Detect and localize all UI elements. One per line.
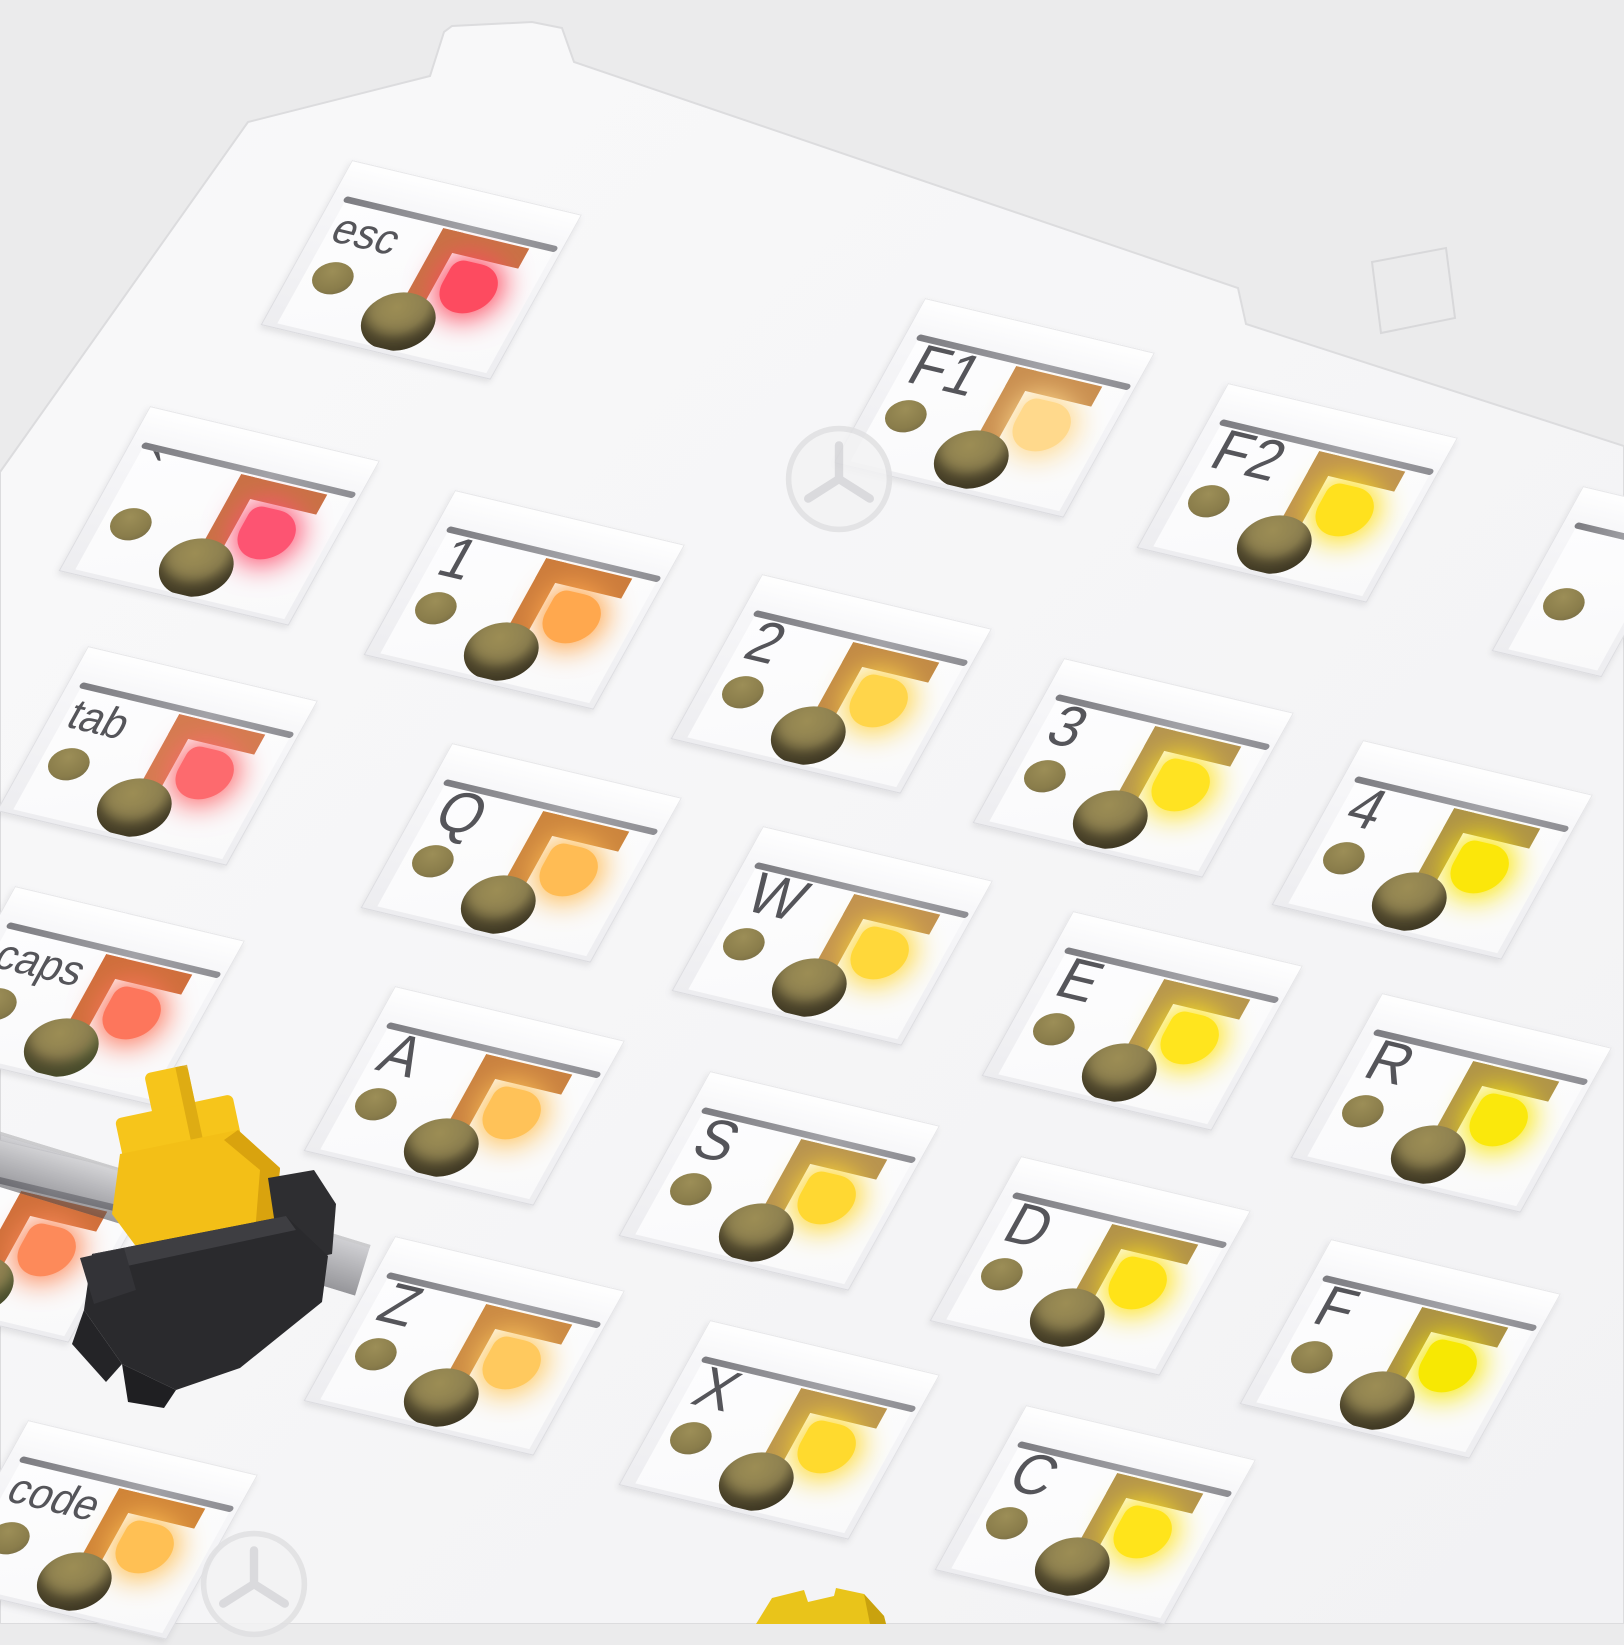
mount-hole-small (103, 504, 158, 544)
tri-point-screw (198, 1528, 310, 1640)
second-switch-stem (752, 1586, 892, 1629)
mount-hole-small (405, 841, 460, 881)
plate-notch-cutout (1372, 248, 1455, 333)
mount-hole-small (1017, 756, 1072, 796)
loose-switch-image (28, 1058, 348, 1408)
mount-hole-small (1316, 838, 1371, 878)
mount-hole-small (974, 1254, 1029, 1294)
mount-hole-small (348, 1334, 403, 1374)
tri-point-screw-icon (198, 1528, 310, 1640)
mount-hole-small (348, 1084, 403, 1124)
mount-hole-small (1026, 1009, 1081, 1049)
mount-hole-small (305, 258, 360, 298)
tri-point-screw (783, 423, 895, 535)
mount-hole-small (979, 1503, 1034, 1543)
mount-hole-small (408, 588, 463, 628)
mount-hole-small (663, 1169, 718, 1209)
mount-hole-small (715, 672, 770, 712)
mount-hole-small (663, 1418, 718, 1458)
mount-hole-small (716, 924, 771, 964)
mount-hole-small (1335, 1091, 1390, 1131)
mount-hole-small (0, 1518, 36, 1558)
mount-hole-small (1536, 584, 1591, 624)
tri-point-screw-icon (783, 423, 895, 535)
mount-hole-small (1181, 481, 1236, 521)
loose-switch (28, 1058, 348, 1413)
mount-hole-small (41, 744, 96, 784)
mount-hole-small (1284, 1337, 1339, 1377)
keyboard-plate-scene: esc F1 F2 (0, 0, 1624, 1624)
mount-hole-small (0, 984, 23, 1024)
